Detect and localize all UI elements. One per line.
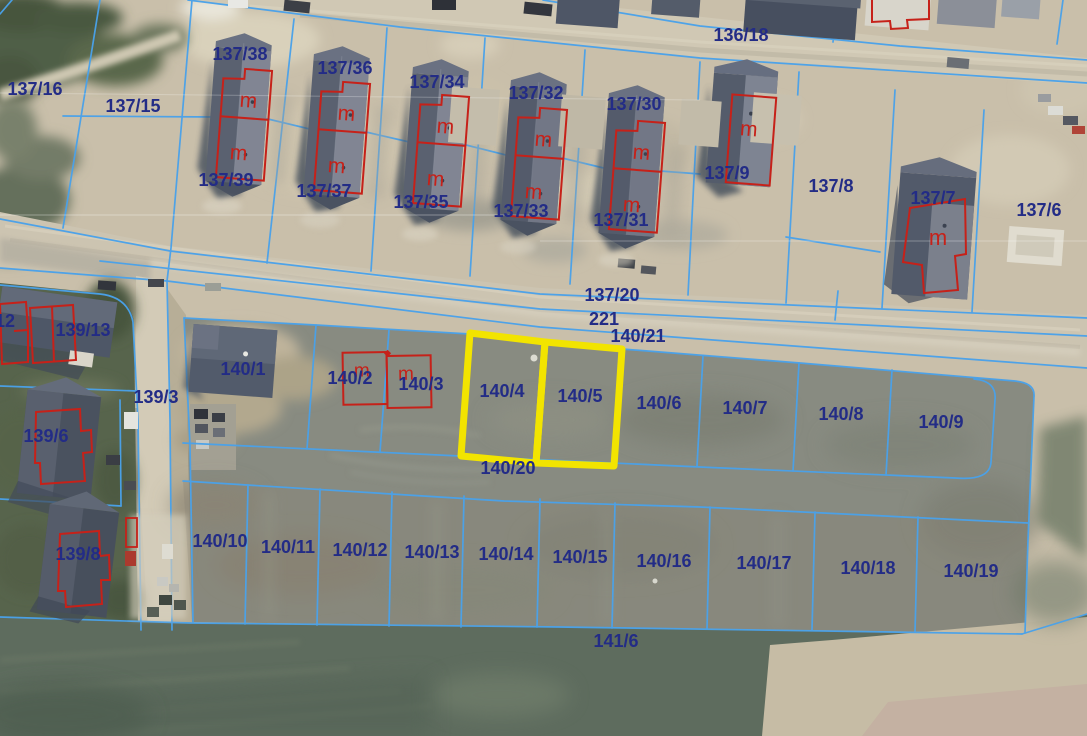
svg-text:137/31: 137/31: [593, 210, 648, 230]
svg-text:139/8: 139/8: [55, 544, 100, 564]
svg-text:137/8: 137/8: [808, 176, 853, 196]
svg-text:139/3: 139/3: [133, 387, 178, 407]
svg-text:140/9: 140/9: [918, 412, 963, 432]
svg-text:140/14: 140/14: [478, 544, 533, 564]
svg-text:137/35: 137/35: [393, 192, 448, 212]
svg-text:137/7: 137/7: [910, 188, 955, 208]
svg-text:140/4: 140/4: [479, 381, 524, 401]
svg-text:137/34: 137/34: [409, 72, 464, 92]
svg-text:140/20: 140/20: [480, 458, 535, 478]
svg-text:m: m: [739, 117, 758, 141]
svg-text:137/30: 137/30: [606, 94, 661, 114]
svg-text:12: 12: [0, 311, 15, 331]
svg-text:137/38: 137/38: [212, 44, 267, 64]
svg-text:140/21: 140/21: [610, 326, 665, 346]
svg-text:140/5: 140/5: [557, 386, 602, 406]
svg-text:140/7: 140/7: [722, 398, 767, 418]
svg-text:137/9: 137/9: [704, 163, 749, 183]
svg-text:137/33: 137/33: [493, 201, 548, 221]
svg-text:137/36: 137/36: [317, 58, 372, 78]
svg-text:140/6: 140/6: [636, 393, 681, 413]
svg-text:140/1: 140/1: [220, 359, 265, 379]
svg-text:140/2: 140/2: [327, 368, 372, 388]
svg-text:140/19: 140/19: [943, 561, 998, 581]
svg-text:137/32: 137/32: [508, 83, 563, 103]
svg-text:140/11: 140/11: [261, 537, 315, 557]
svg-text:m: m: [929, 225, 947, 250]
svg-text:140/16: 140/16: [636, 551, 691, 571]
svg-text:137/16: 137/16: [7, 79, 62, 99]
svg-text:140/12: 140/12: [332, 540, 387, 560]
svg-text:140/17: 140/17: [736, 553, 791, 573]
svg-text:136/18: 136/18: [713, 25, 768, 45]
svg-text:141/6: 141/6: [593, 631, 638, 651]
svg-text:140/10: 140/10: [192, 531, 247, 551]
svg-text:137/15: 137/15: [105, 96, 160, 116]
svg-text:137/6: 137/6: [1016, 200, 1061, 220]
svg-text:140/18: 140/18: [840, 558, 895, 578]
svg-text:140/3: 140/3: [398, 374, 443, 394]
svg-text:140/8: 140/8: [818, 404, 863, 424]
svg-text:139/13: 139/13: [55, 320, 110, 340]
svg-text:139/6: 139/6: [23, 426, 68, 446]
svg-text:140/13: 140/13: [404, 542, 459, 562]
svg-text:137/20: 137/20: [584, 285, 639, 305]
svg-text:137/37: 137/37: [296, 181, 351, 201]
svg-text:140/15: 140/15: [552, 547, 607, 567]
svg-text:137/39: 137/39: [198, 170, 253, 190]
